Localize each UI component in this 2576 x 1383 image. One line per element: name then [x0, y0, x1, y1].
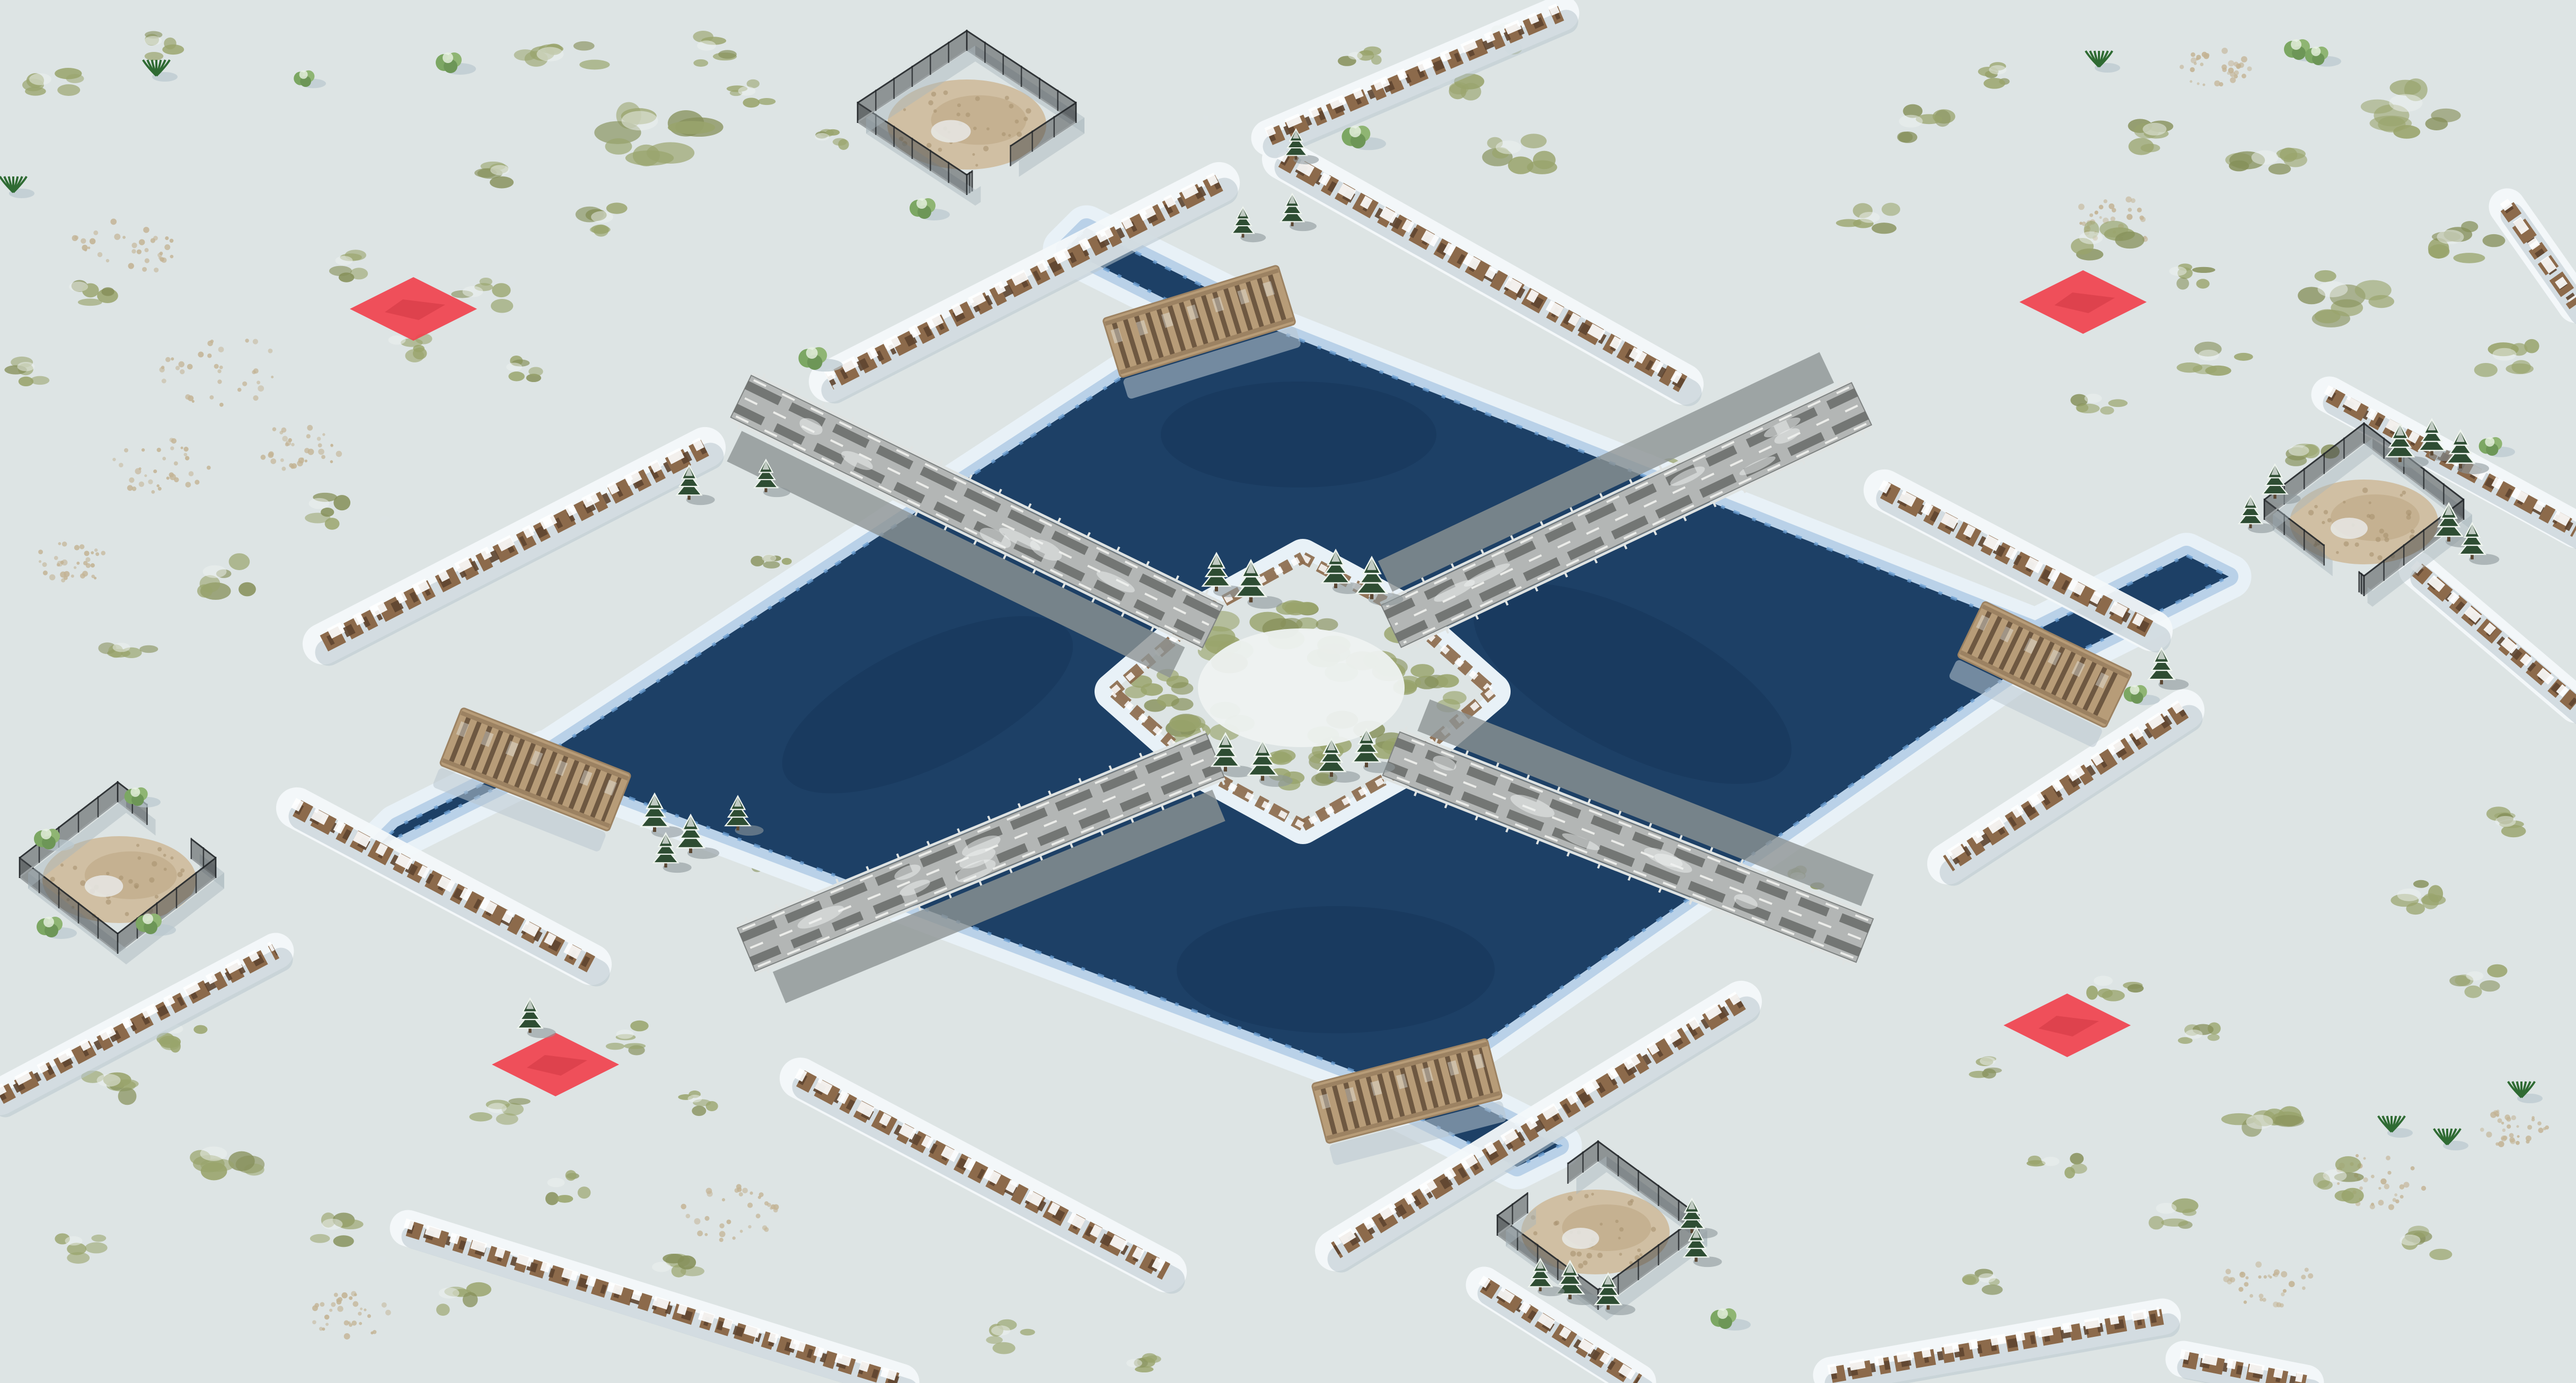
island-plateau [1198, 628, 1405, 747]
water-deep-patch [1161, 382, 1436, 487]
map-viewport [0, 0, 2576, 1383]
water-deep-patch [1177, 906, 1495, 1033]
map-canvas[interactable] [0, 0, 2576, 1383]
